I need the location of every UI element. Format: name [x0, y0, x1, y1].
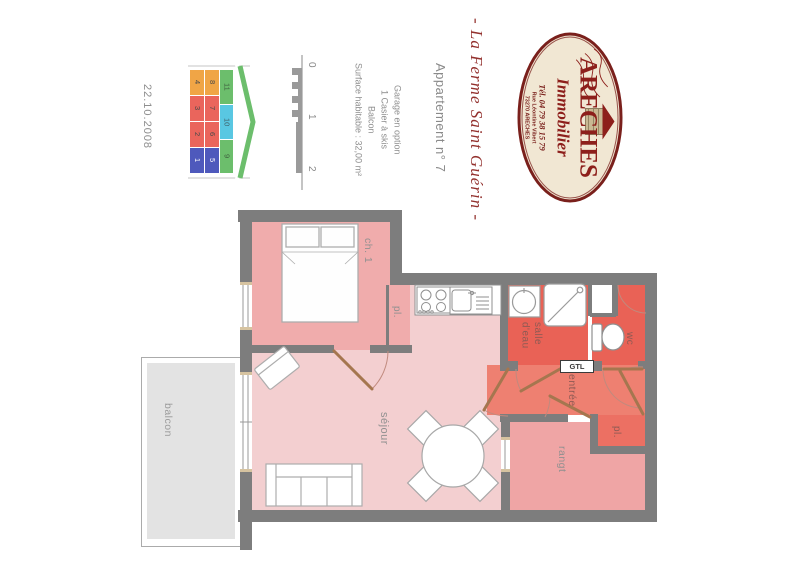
wall-left-b [240, 327, 252, 376]
balcony-window-door [240, 374, 252, 471]
storage-label: rangt [556, 446, 568, 490]
bathroom-niche [592, 285, 612, 313]
wall-entry-storage [500, 414, 568, 422]
key-cell: 4 [190, 70, 204, 95]
entry-closet-label: pl. [611, 426, 622, 438]
wall-niche-right [612, 283, 618, 316]
scale-bar [292, 55, 302, 190]
agency-name: ARECHES [576, 33, 601, 203]
scale-tick-2: 2 [306, 166, 317, 172]
wall-under-entry-closet [590, 446, 647, 454]
wc-floor2 [592, 317, 614, 365]
wall-closet-divider [386, 285, 389, 345]
balcony-label: balcon [162, 403, 174, 453]
agency-subtitle: Immobilier [553, 33, 573, 203]
wall-shower-left [500, 283, 508, 365]
agency-address-line1: Rue Léontine Vibert [530, 33, 537, 203]
scale-tick-1: 1 [306, 114, 317, 120]
wall-stub-wc [638, 361, 647, 369]
wc-label: wc [624, 332, 635, 345]
shower-room-label: salle d'eau [517, 322, 543, 360]
interior-window [501, 439, 510, 471]
detail-garage: Garage en option [391, 22, 404, 218]
apartment-number-title: Appartement n° 7 [433, 48, 448, 188]
bedroom-closet-label: pl. [391, 306, 402, 318]
agency-phone: Tél. 04 79 38 15 79 [538, 33, 548, 203]
scale-tick-0: 0 [306, 62, 317, 68]
key-cell: 1 [190, 148, 204, 173]
detail-balcony: Balcon [365, 22, 378, 218]
wall-left-a [240, 210, 252, 286]
apartment-details: Surface habitable : 32,00 m² Balcon 1 Ca… [352, 22, 404, 218]
key-cell: 3 [190, 96, 204, 121]
wall-bottom [238, 510, 657, 522]
detail-surface: Surface habitable : 32,00 m² [352, 22, 365, 218]
key-cell: 9 [220, 140, 233, 173]
key-cell: 11 [220, 70, 233, 104]
key-cell: 6 [205, 122, 219, 147]
wall-niche-bottom [590, 313, 616, 317]
wall-bedroom-bottom-a [252, 345, 334, 353]
residence-name-title: - La Ferme Saint Guérin - [466, 12, 486, 227]
bedroom-label: ch. 1 [362, 238, 374, 284]
plan-date: 22.10.2008 [141, 84, 153, 149]
kitchen-floor [410, 285, 501, 355]
key-cell: 8 [205, 70, 219, 95]
agency-address: Rue Léontine Vibert 73270 ARECHES [523, 33, 536, 203]
wall-left-c [240, 469, 252, 550]
wall-stub-gtl-left [500, 361, 518, 371]
detail-ski-locker: 1 Casier à skis [378, 22, 391, 218]
wc-floor [614, 285, 645, 365]
key-cell: 10 [220, 105, 233, 139]
gtl-box: GTL [560, 360, 594, 373]
balcony-floor [147, 363, 235, 539]
bedroom-window [240, 284, 252, 329]
entry-label: entrée [566, 374, 578, 418]
living-room-floor [252, 350, 502, 512]
agency-logo: ARECHES Immobilier Tél. 04 79 38 15 79 R… [518, 33, 623, 203]
key-cell: 2 [190, 122, 204, 147]
floorplan-page: 22.10.2008 4 3 2 1 8 7 6 5 11 10 9 0 1 2… [0, 0, 800, 566]
wall-right [645, 273, 657, 522]
living-room-label: séjour [378, 412, 390, 458]
key-cell: 5 [205, 148, 219, 173]
key-cell: 7 [205, 96, 219, 121]
agency-address-line2: 73270 ARECHES [523, 33, 530, 203]
wall-bedroom-bottom-b [370, 345, 412, 353]
